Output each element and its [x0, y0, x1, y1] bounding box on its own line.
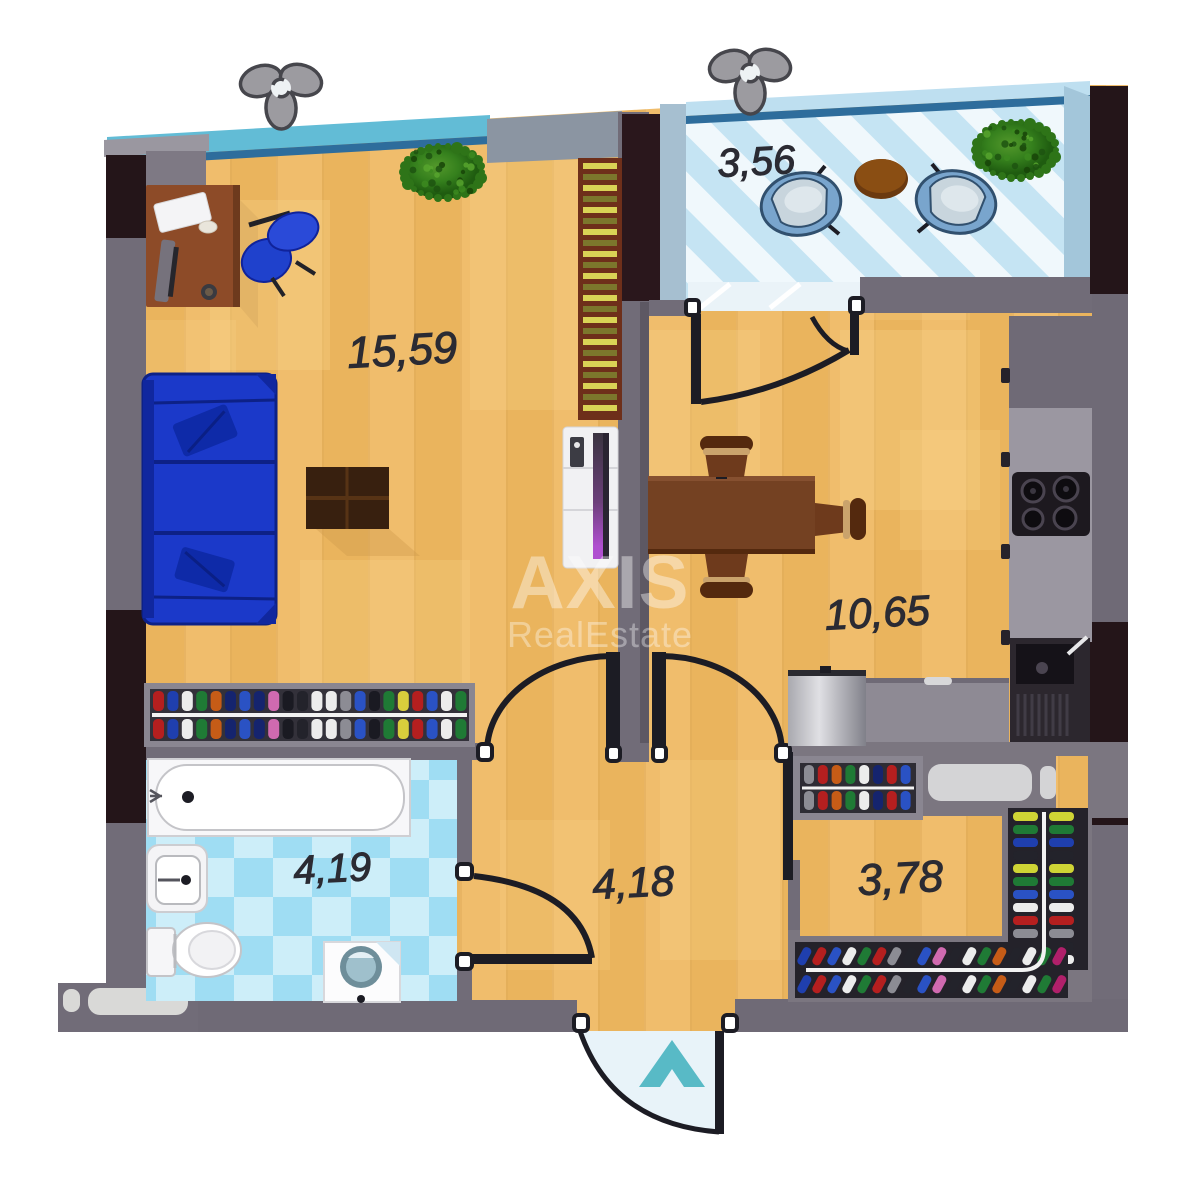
- svg-text:AXIS: AXIS: [510, 540, 689, 624]
- svg-text:RealEstate: RealEstate: [507, 614, 693, 655]
- svg-text:10,65: 10,65: [824, 586, 932, 638]
- svg-text:4,19: 4,19: [292, 845, 372, 893]
- svg-text:3,78: 3,78: [856, 852, 945, 905]
- svg-text:4,18: 4,18: [591, 857, 676, 908]
- svg-text:15,59: 15,59: [346, 323, 459, 378]
